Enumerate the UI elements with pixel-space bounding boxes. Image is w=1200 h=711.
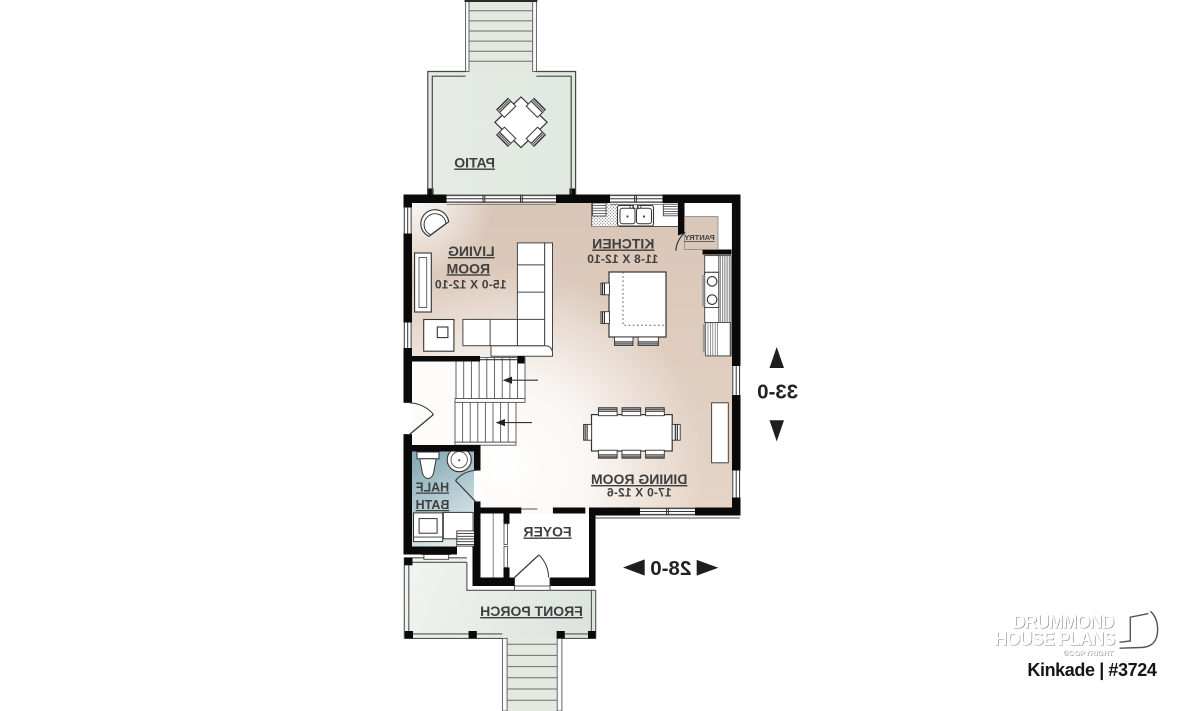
svg-text:HALF: HALF bbox=[415, 481, 449, 495]
svg-text:PANTRY: PANTRY bbox=[684, 233, 714, 242]
svg-text:28-0: 28-0 bbox=[650, 557, 691, 580]
svg-text:©COPYRIGHT: ©COPYRIGHT bbox=[1063, 648, 1114, 657]
svg-text:ROOM: ROOM bbox=[447, 260, 491, 276]
svg-text:15-0 X 12-10: 15-0 X 12-10 bbox=[435, 277, 507, 291]
svg-text:PATIO: PATIO bbox=[454, 155, 495, 171]
svg-text:FOYER: FOYER bbox=[523, 524, 571, 540]
svg-text:Kinkade | #3724: Kinkade | #3724 bbox=[1027, 660, 1157, 680]
svg-text:33-0: 33-0 bbox=[757, 381, 798, 404]
svg-text:KITCHEN: KITCHEN bbox=[592, 236, 654, 252]
svg-text:17-0 X 12-6: 17-0 X 12-6 bbox=[607, 485, 672, 499]
svg-text:FRONT PORCH: FRONT PORCH bbox=[480, 603, 583, 619]
svg-text:HOUSE PLANS: HOUSE PLANS bbox=[994, 629, 1115, 649]
svg-text:LIVING: LIVING bbox=[448, 243, 495, 259]
svg-text:BATH: BATH bbox=[416, 498, 450, 512]
svg-text:11-8 X 12-10: 11-8 X 12-10 bbox=[587, 252, 658, 266]
